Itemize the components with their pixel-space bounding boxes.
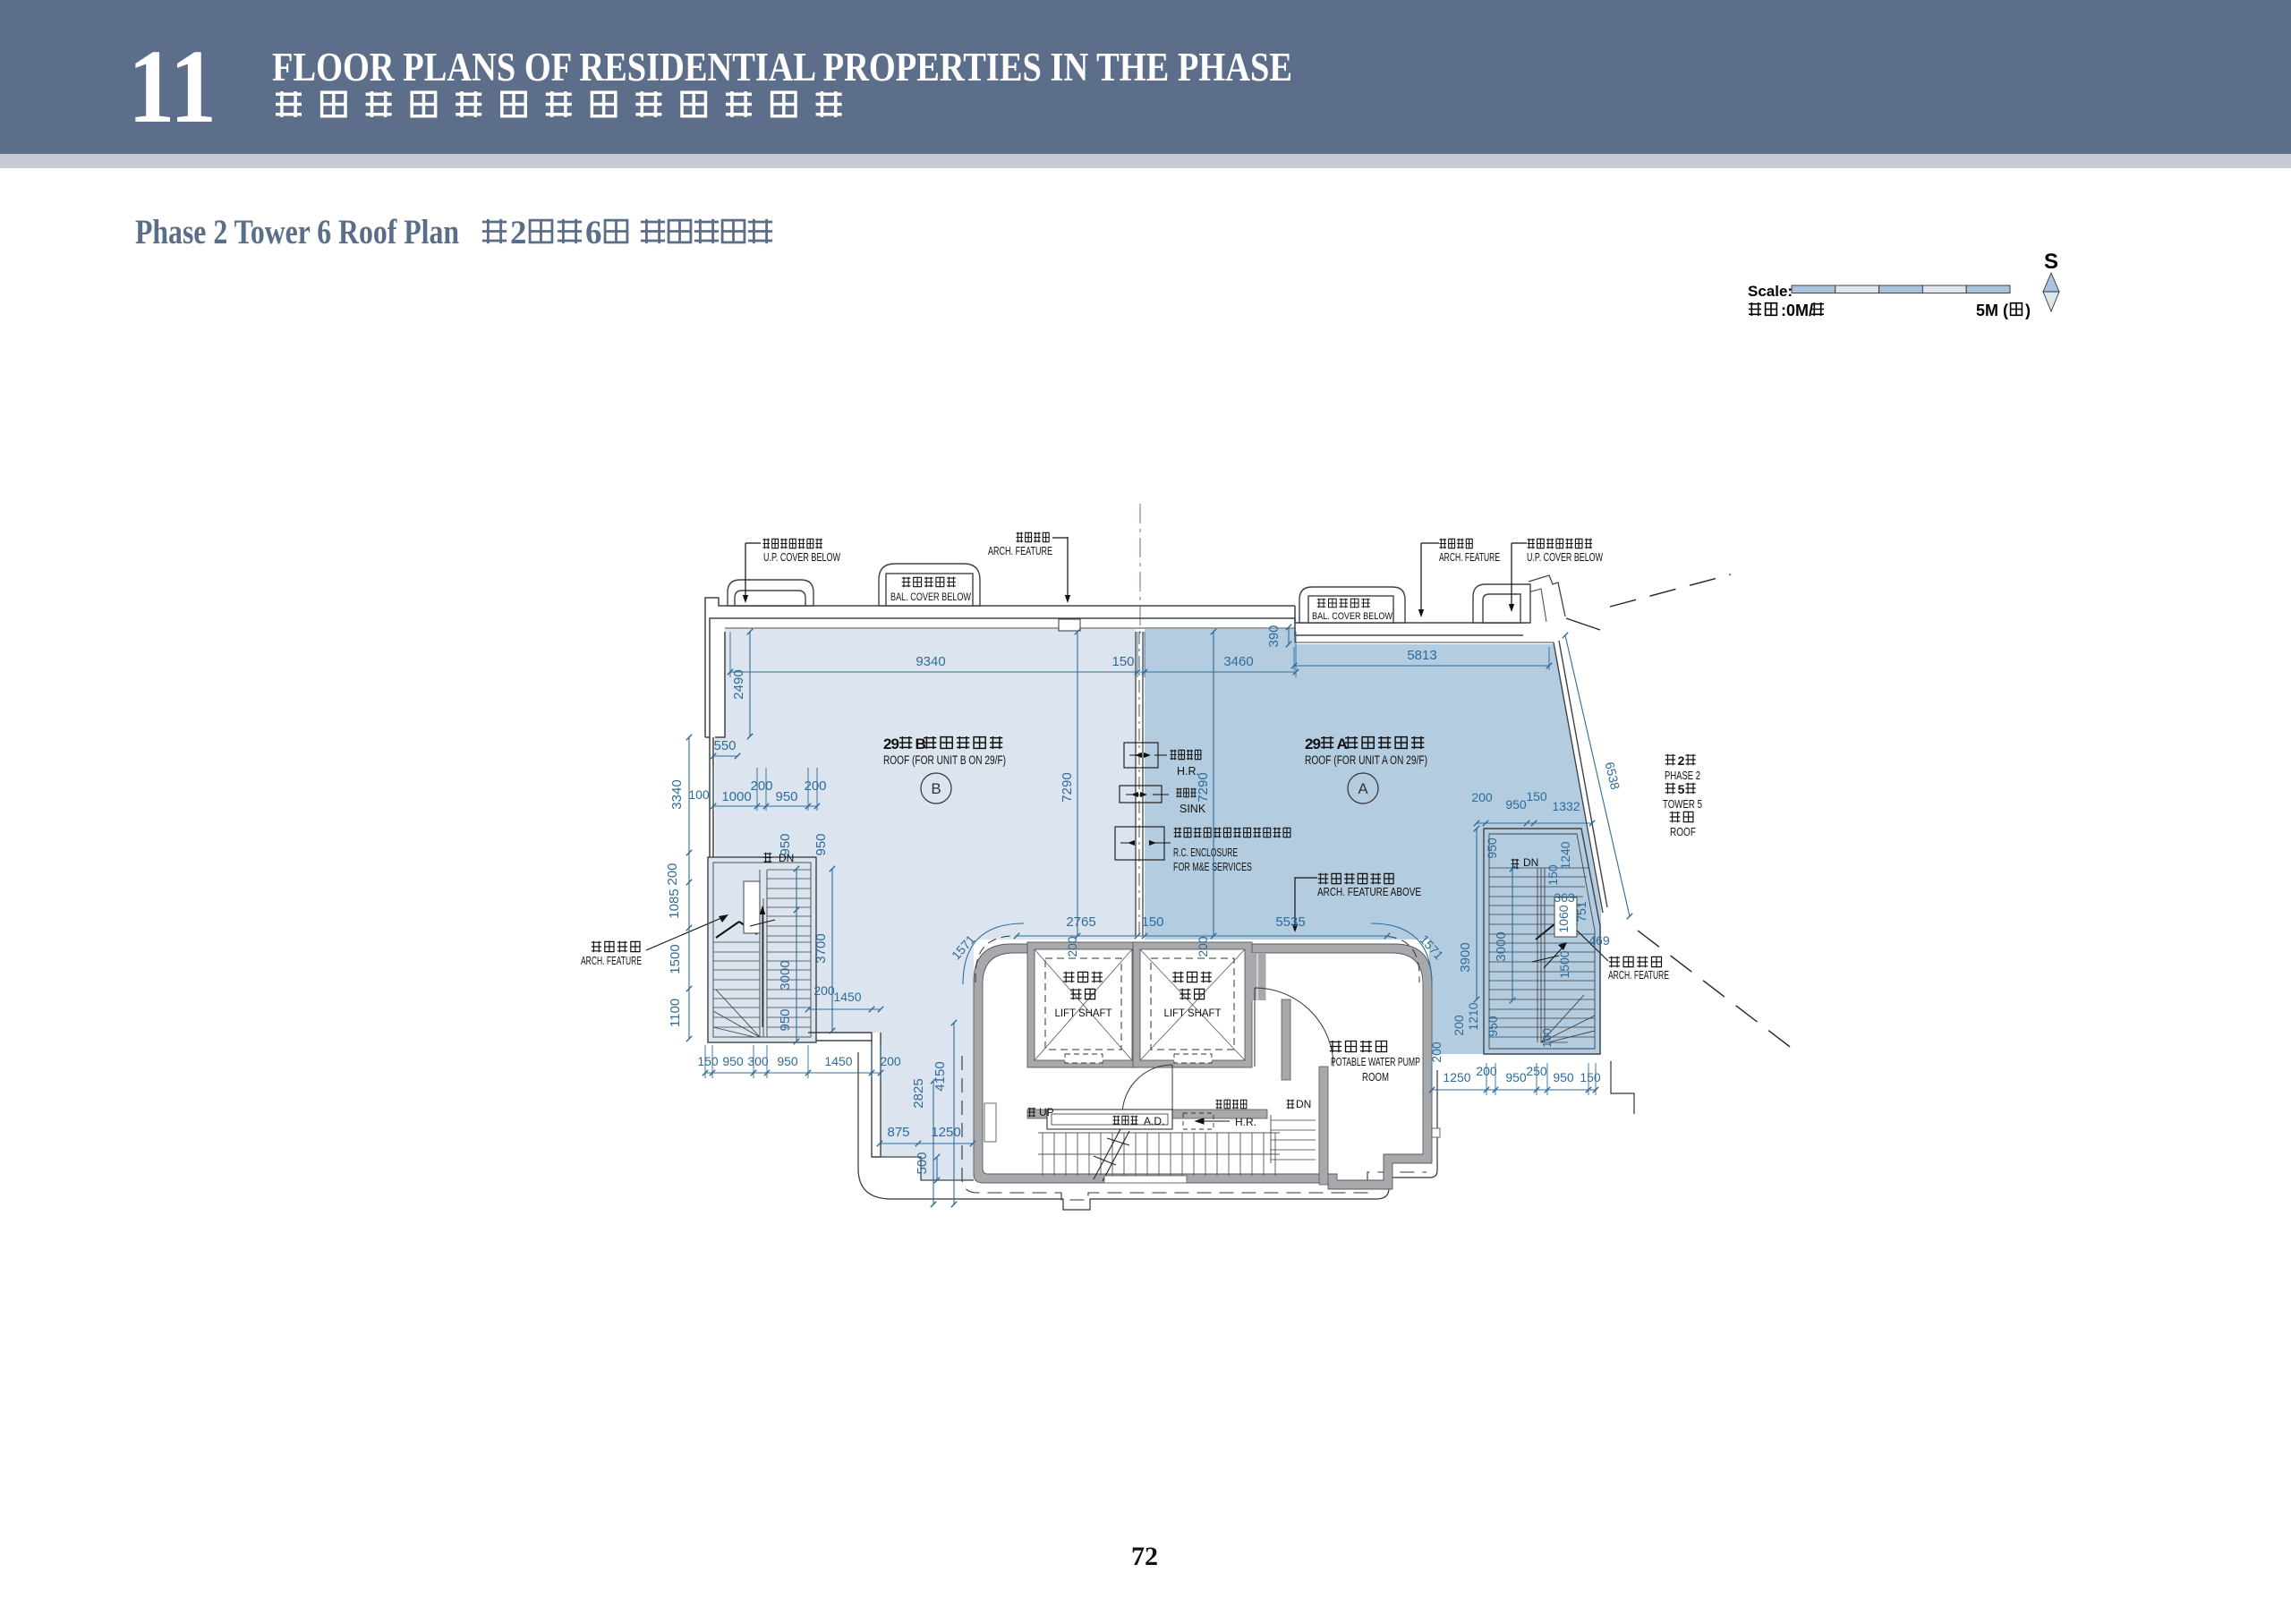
svg-text:5813: 5813 bbox=[1407, 648, 1436, 663]
svg-text:Phase 2 Tower 6 Roof Plan: Phase 2 Tower 6 Roof Plan bbox=[135, 213, 459, 251]
svg-text:200: 200 bbox=[813, 983, 835, 998]
svg-text:950: 950 bbox=[1553, 1070, 1574, 1084]
svg-text:POTABLE WATER PUMP: POTABLE WATER PUMP bbox=[1331, 1056, 1420, 1068]
svg-text:6538: 6538 bbox=[1603, 761, 1623, 791]
svg-text:950: 950 bbox=[1505, 1070, 1527, 1084]
svg-text:ROOF (FOR UNIT A ON 29/F): ROOF (FOR UNIT A ON 29/F) bbox=[1305, 753, 1427, 767]
svg-text:950: 950 bbox=[1485, 838, 1499, 859]
svg-text:ARCH. FEATURE ABOVE: ARCH. FEATURE ABOVE bbox=[1317, 886, 1421, 898]
svg-text:200: 200 bbox=[750, 778, 772, 794]
svg-text:2765: 2765 bbox=[1066, 914, 1095, 930]
svg-text:751: 751 bbox=[1574, 901, 1588, 923]
svg-text:1240: 1240 bbox=[1558, 841, 1572, 869]
svg-text:TOWER 5: TOWER 5 bbox=[1663, 797, 1702, 811]
svg-text:550: 550 bbox=[713, 738, 736, 753]
svg-text:3000: 3000 bbox=[778, 960, 793, 990]
svg-text:ARCH. FEATURE: ARCH. FEATURE bbox=[988, 545, 1052, 557]
svg-text:ARCH. FEATURE: ARCH. FEATURE bbox=[581, 955, 642, 967]
svg-text:BAL. COVER BELOW: BAL. COVER BELOW bbox=[890, 592, 971, 603]
svg-text:950: 950 bbox=[1505, 797, 1527, 812]
svg-text:150: 150 bbox=[1141, 914, 1163, 930]
svg-text:ARCH. FEATURE: ARCH. FEATURE bbox=[1439, 551, 1500, 564]
svg-text:950: 950 bbox=[1486, 1016, 1500, 1037]
svg-text:200: 200 bbox=[1429, 1042, 1444, 1063]
svg-text:950: 950 bbox=[778, 833, 793, 855]
svg-text:A.D.: A.D. bbox=[1144, 1115, 1164, 1127]
svg-text:150: 150 bbox=[697, 1054, 719, 1068]
svg-text:9: 9 bbox=[1313, 735, 1321, 752]
svg-text:150: 150 bbox=[1526, 789, 1547, 803]
svg-text:Scale:: Scale: bbox=[1748, 283, 1793, 300]
svg-text:1000: 1000 bbox=[721, 789, 751, 804]
svg-text:3700: 3700 bbox=[813, 933, 829, 963]
svg-text:1500: 1500 bbox=[668, 944, 683, 974]
svg-text:1250: 1250 bbox=[1443, 1070, 1470, 1084]
svg-text:B: B bbox=[931, 780, 941, 797]
svg-text:3900: 3900 bbox=[1458, 942, 1473, 972]
svg-text:SINK: SINK bbox=[1180, 803, 1206, 815]
svg-text:LIFT SHAFT: LIFT SHAFT bbox=[1055, 1007, 1113, 1019]
svg-text:1100: 1100 bbox=[668, 999, 683, 1027]
svg-text:390: 390 bbox=[1266, 625, 1282, 647]
svg-text:200: 200 bbox=[1471, 790, 1493, 804]
svg-text:ROOF: ROOF bbox=[1670, 825, 1696, 838]
svg-text:5: 5 bbox=[1678, 782, 1685, 796]
svg-text:7290: 7290 bbox=[1060, 772, 1075, 802]
svg-text:9340: 9340 bbox=[916, 654, 945, 669]
svg-text:DN: DN bbox=[1296, 1098, 1311, 1110]
svg-text:A: A bbox=[1358, 780, 1368, 797]
svg-text:BAL. COVER BELOW: BAL. COVER BELOW bbox=[1312, 611, 1393, 622]
svg-text:5535: 5535 bbox=[1275, 914, 1305, 930]
svg-text:11: 11 bbox=[128, 28, 217, 145]
svg-text:950: 950 bbox=[778, 1008, 793, 1031]
svg-text:PHASE 2: PHASE 2 bbox=[1665, 769, 1700, 782]
svg-text:4150: 4150 bbox=[933, 1061, 948, 1091]
svg-text:300: 300 bbox=[747, 1054, 769, 1068]
svg-text:100: 100 bbox=[1540, 1028, 1554, 1048]
svg-text:R.C. ENCLOSURE: R.C. ENCLOSURE bbox=[1173, 846, 1238, 859]
svg-text:1450: 1450 bbox=[833, 990, 861, 1004]
svg-text:2825: 2825 bbox=[911, 1078, 926, 1108]
svg-text:200: 200 bbox=[1065, 936, 1079, 957]
svg-text:3000: 3000 bbox=[1494, 931, 1509, 961]
svg-text:950: 950 bbox=[813, 833, 829, 855]
svg-text:200: 200 bbox=[665, 863, 680, 885]
svg-text:3340: 3340 bbox=[669, 779, 685, 809]
svg-text:1332: 1332 bbox=[1552, 799, 1580, 813]
svg-text:FOR M&E SERVICES: FOR M&E SERVICES bbox=[1173, 861, 1252, 873]
svg-text:2: 2 bbox=[1678, 753, 1685, 768]
svg-text:6: 6 bbox=[585, 215, 602, 251]
svg-text:1060: 1060 bbox=[1556, 905, 1571, 932]
svg-text:1450: 1450 bbox=[824, 1054, 852, 1068]
svg-text:5M (: 5M ( bbox=[1976, 302, 2008, 319]
svg-text:150: 150 bbox=[1546, 864, 1560, 886]
svg-text:469: 469 bbox=[1588, 933, 1610, 948]
svg-text:150: 150 bbox=[1111, 654, 1134, 669]
svg-text:2: 2 bbox=[510, 215, 527, 251]
svg-text:363: 363 bbox=[1554, 890, 1575, 905]
svg-text:1250: 1250 bbox=[931, 1125, 960, 1140]
svg-text:875: 875 bbox=[887, 1125, 909, 1140]
svg-text:FLOOR PLANS OF RESIDENTIAL PRO: FLOOR PLANS OF RESIDENTIAL PROPERTIES IN… bbox=[272, 45, 1292, 89]
svg-text:U.P. COVER BELOW: U.P. COVER BELOW bbox=[1527, 551, 1603, 564]
svg-text:ROOM: ROOM bbox=[1362, 1071, 1389, 1084]
svg-text:9: 9 bbox=[891, 735, 899, 752]
svg-text:500: 500 bbox=[915, 1152, 930, 1174]
svg-text:200: 200 bbox=[880, 1054, 901, 1068]
svg-text:DN: DN bbox=[1523, 856, 1538, 869]
svg-text:100: 100 bbox=[688, 787, 710, 802]
svg-text:200: 200 bbox=[1196, 936, 1210, 957]
svg-text:U.P. COVER BELOW: U.P. COVER BELOW bbox=[763, 551, 840, 564]
svg-text:H.R.: H.R. bbox=[1235, 1116, 1256, 1128]
svg-text:LIFT SHAFT: LIFT SHAFT bbox=[1164, 1007, 1222, 1019]
svg-text:950: 950 bbox=[777, 1054, 798, 1068]
svg-text:200: 200 bbox=[804, 778, 826, 794]
svg-text:1085: 1085 bbox=[667, 889, 682, 918]
svg-text:200: 200 bbox=[1452, 1015, 1466, 1036]
svg-text:7290: 7290 bbox=[1196, 772, 1211, 802]
svg-text:ROOF (FOR UNIT B ON 29/F): ROOF (FOR UNIT B ON 29/F) bbox=[883, 753, 1006, 767]
svg-text:ARCH. FEATURE: ARCH. FEATURE bbox=[1608, 969, 1669, 982]
svg-text::0M/: :0M/ bbox=[1781, 302, 1813, 319]
svg-text:2490: 2490 bbox=[731, 669, 746, 699]
svg-text:S: S bbox=[2044, 250, 2058, 274]
svg-text:3460: 3460 bbox=[1223, 654, 1253, 669]
svg-text:950: 950 bbox=[722, 1054, 744, 1068]
svg-text:72: 72 bbox=[1131, 1542, 1158, 1571]
svg-text:150: 150 bbox=[1580, 1070, 1601, 1084]
svg-text:UP: UP bbox=[1039, 1106, 1054, 1118]
svg-text:950: 950 bbox=[775, 789, 797, 804]
svg-text:): ) bbox=[2025, 302, 2031, 319]
svg-text:1500: 1500 bbox=[1557, 950, 1571, 978]
svg-text:1210: 1210 bbox=[1466, 1002, 1480, 1030]
